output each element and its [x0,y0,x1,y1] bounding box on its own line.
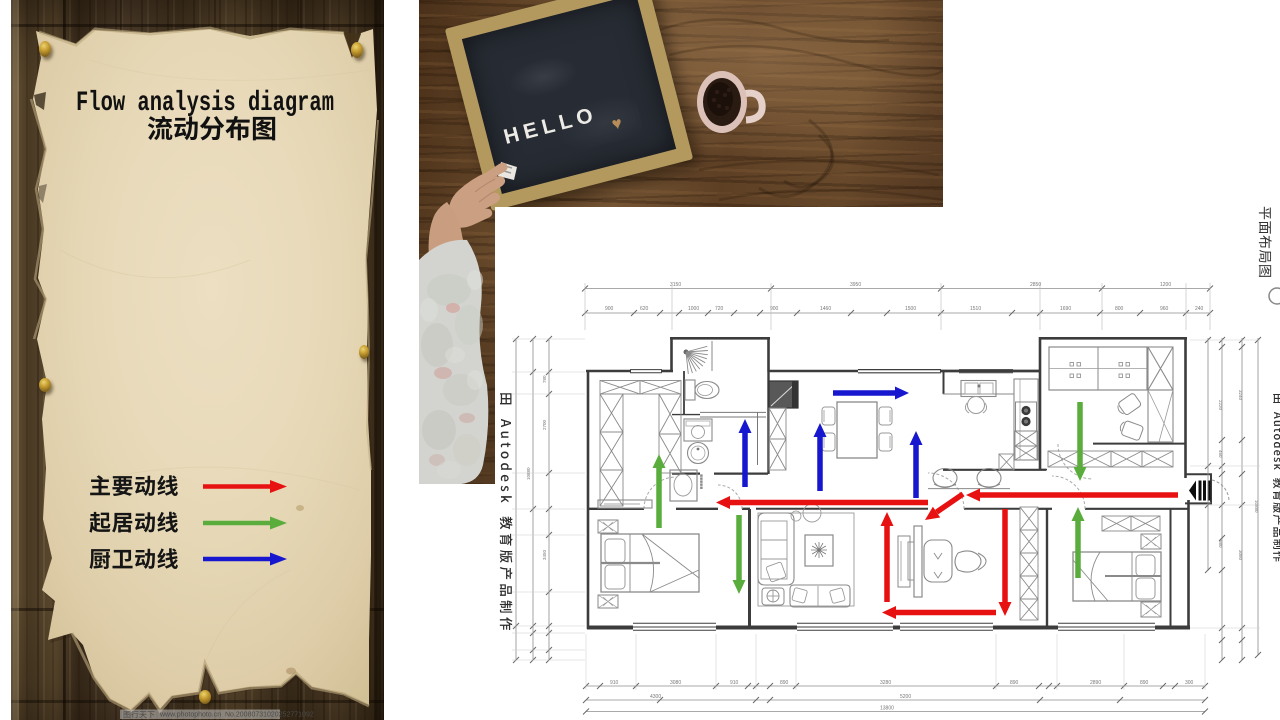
svg-text:3450: 3450 [542,549,547,560]
svg-text:900: 900 [605,306,614,312]
svg-text:780: 780 [542,375,547,383]
svg-text:3950: 3950 [850,282,861,288]
svg-text:■■■■■: ■■■■■ [698,474,704,489]
svg-text:10880: 10880 [1254,500,1259,513]
svg-text:4300: 4300 [650,694,661,700]
svg-text:www.photophoto.cn No.20080731: www.photophoto.cn No.2008073102025277109… [159,712,314,719]
svg-text:2890: 2890 [1090,680,1101,686]
svg-text:3240: 3240 [1238,390,1243,401]
svg-text:1690: 1690 [1060,306,1071,312]
svg-text:720: 720 [715,306,724,312]
svg-text:3080: 3080 [670,680,681,686]
svg-text:910: 910 [730,680,739,686]
svg-text:620: 620 [640,306,649,312]
svg-text:1460: 1460 [820,306,831,312]
svg-text:1000: 1000 [688,306,699,312]
svg-text:2220: 2220 [1218,400,1223,411]
svg-text:3280: 3280 [880,680,891,686]
svg-text:800: 800 [1115,306,1124,312]
svg-text:5200: 5200 [900,694,911,700]
svg-text:300: 300 [1185,680,1194,686]
svg-text:980: 980 [1218,540,1223,548]
svg-text:10880: 10880 [526,467,531,480]
svg-text:1510: 1510 [970,306,981,312]
svg-text:890: 890 [780,680,789,686]
svg-text:1500: 1500 [905,306,916,312]
svg-text:890: 890 [1140,680,1149,686]
svg-text:890: 890 [1010,680,1019,686]
svg-text:3080: 3080 [1238,550,1243,561]
svg-text:2700: 2700 [542,419,547,430]
svg-text:960: 960 [1160,306,1169,312]
svg-text:1200: 1200 [1160,282,1171,288]
svg-text:Flow analysis diagram: Flow analysis diagram [76,88,334,119]
svg-text:13800: 13800 [880,706,894,712]
svg-text:460: 460 [1218,450,1223,458]
svg-text:2850: 2850 [1030,282,1041,288]
svg-text:910: 910 [610,680,619,686]
svg-text:240: 240 [1195,306,1204,312]
